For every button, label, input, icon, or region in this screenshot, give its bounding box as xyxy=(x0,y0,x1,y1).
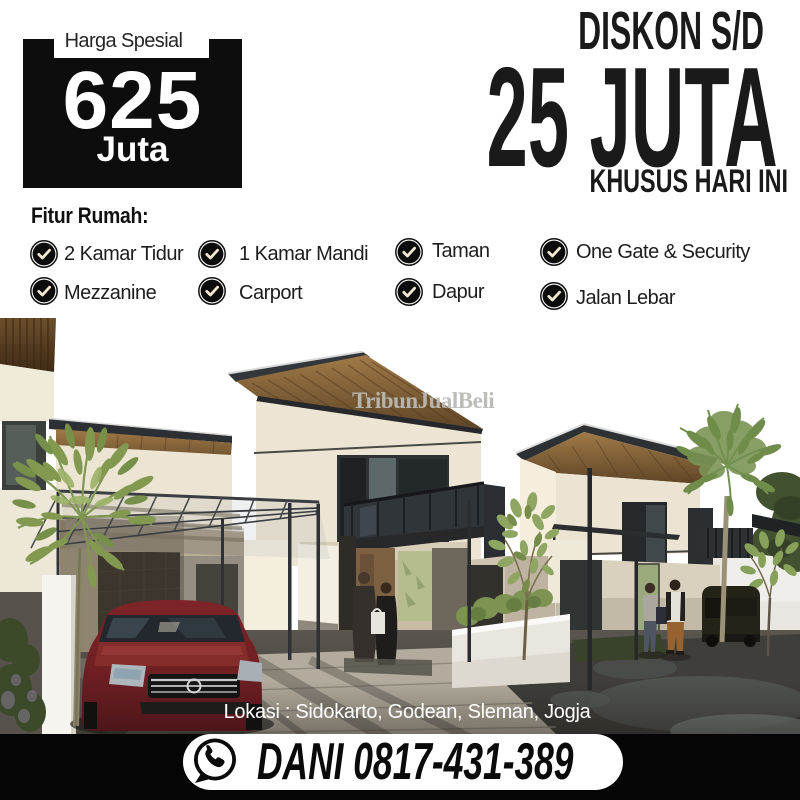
svg-text:TribunJualBeli: TribunJualBeli xyxy=(352,388,495,413)
